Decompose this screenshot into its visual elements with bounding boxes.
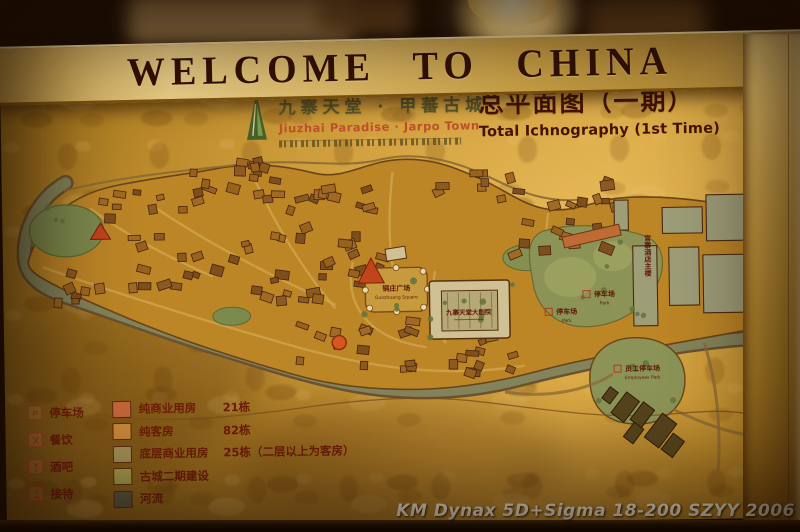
legend-category-column: 纯商业用房21栋纯客房82栋底层商业用房25栋（二层以上为客房）古城二期建设河流	[112, 394, 356, 510]
lamp-light-icon	[468, 0, 556, 26]
map-label-hotel-main-building: 官寨酒店主楼	[643, 234, 653, 278]
legend-poi-column: P停车场餐饮酒吧接待	[27, 399, 85, 512]
legend-poi-bar: 酒吧	[28, 453, 85, 481]
dining-icon	[28, 432, 43, 447]
legend-color-swatch	[113, 468, 132, 485]
map-label-parking-lower: 停车场	[556, 307, 577, 316]
legend-poi-label: 接待	[50, 485, 73, 501]
pond-small	[213, 307, 251, 326]
camera-watermark: KM Dynax 5D+Sigma 18-200 SZYY 2006	[396, 501, 795, 521]
legend-poi-label: 停车场	[49, 404, 84, 421]
map-label-en-guozhuang-square: Guozhuang Square	[375, 294, 418, 301]
legend-color-swatch	[112, 446, 131, 463]
legend-category-count: 82栋	[223, 422, 251, 438]
legend-category-label: 底层商业用房	[139, 445, 223, 462]
map-label-parking-upper: 停车场	[594, 289, 615, 298]
map-label-grand-theatre: 九寨天堂大剧院	[445, 307, 492, 317]
legend-color-swatch	[112, 423, 131, 440]
legend-category-count: 25栋（二层以上为客房）	[223, 443, 354, 461]
brand-title-english: Jiuzhai Paradise · Jarpo Town	[279, 118, 488, 135]
legend-category-label: 古城二期建设	[140, 467, 224, 484]
map-label-en-employees-parking: Employees Park	[625, 375, 661, 382]
ceiling-blur	[128, 0, 353, 44]
map-label-en-parking-upper: Park	[600, 300, 610, 306]
green-peak-logo-icon	[246, 94, 267, 140]
pond-west	[29, 204, 104, 257]
map-label-employees-parking: 员工停车场	[625, 364, 660, 374]
parking-icon: P	[27, 405, 42, 420]
map-label-en-parking-lower: Park	[562, 318, 572, 324]
legend-color-swatch	[112, 401, 131, 418]
poi-marker	[332, 335, 346, 349]
legend-poi-dining: 餐饮	[27, 426, 84, 454]
legend-color-swatch	[113, 491, 132, 508]
map-label-guozhuang-square: 锅庄广场	[381, 283, 410, 292]
map-legend: P停车场餐饮酒吧接待 纯商业用房21栋纯客房82栋底层商业用房25栋（二层以上为…	[27, 394, 355, 512]
bar-icon	[28, 459, 43, 474]
welcome-banner-text: WELCOME TO CHINA	[126, 38, 673, 96]
map-board: 九寨天堂 · 甲蕃古城 Jiuzhai Paradise · Jarpo Tow…	[0, 70, 755, 530]
legend-category-row: 河流	[113, 484, 355, 510]
metal-frame-right	[743, 34, 800, 532]
legend-poi-parking: P停车场	[27, 399, 84, 427]
pavilion	[385, 246, 407, 261]
legend-category-label: 纯商业用房	[139, 400, 223, 417]
ceiling-blur-dark	[318, 0, 413, 34]
legend-category-label: 河流	[140, 490, 224, 507]
legend-poi-label: 酒吧	[50, 458, 73, 474]
legend-poi-reception: 接待	[28, 480, 85, 508]
legend-category-count: 21栋	[223, 399, 251, 415]
service-road	[704, 343, 719, 471]
legend-poi-label: 餐饮	[50, 431, 73, 447]
legend-category-label: 纯客房	[139, 422, 223, 439]
photo-of-map-sign: 九寨天堂 · 甲蕃古城 Jiuzhai Paradise · Jarpo Tow…	[0, 0, 800, 532]
photo-bottom-edge	[0, 520, 800, 532]
reception-icon	[28, 486, 43, 501]
svg-text:P: P	[32, 408, 38, 418]
